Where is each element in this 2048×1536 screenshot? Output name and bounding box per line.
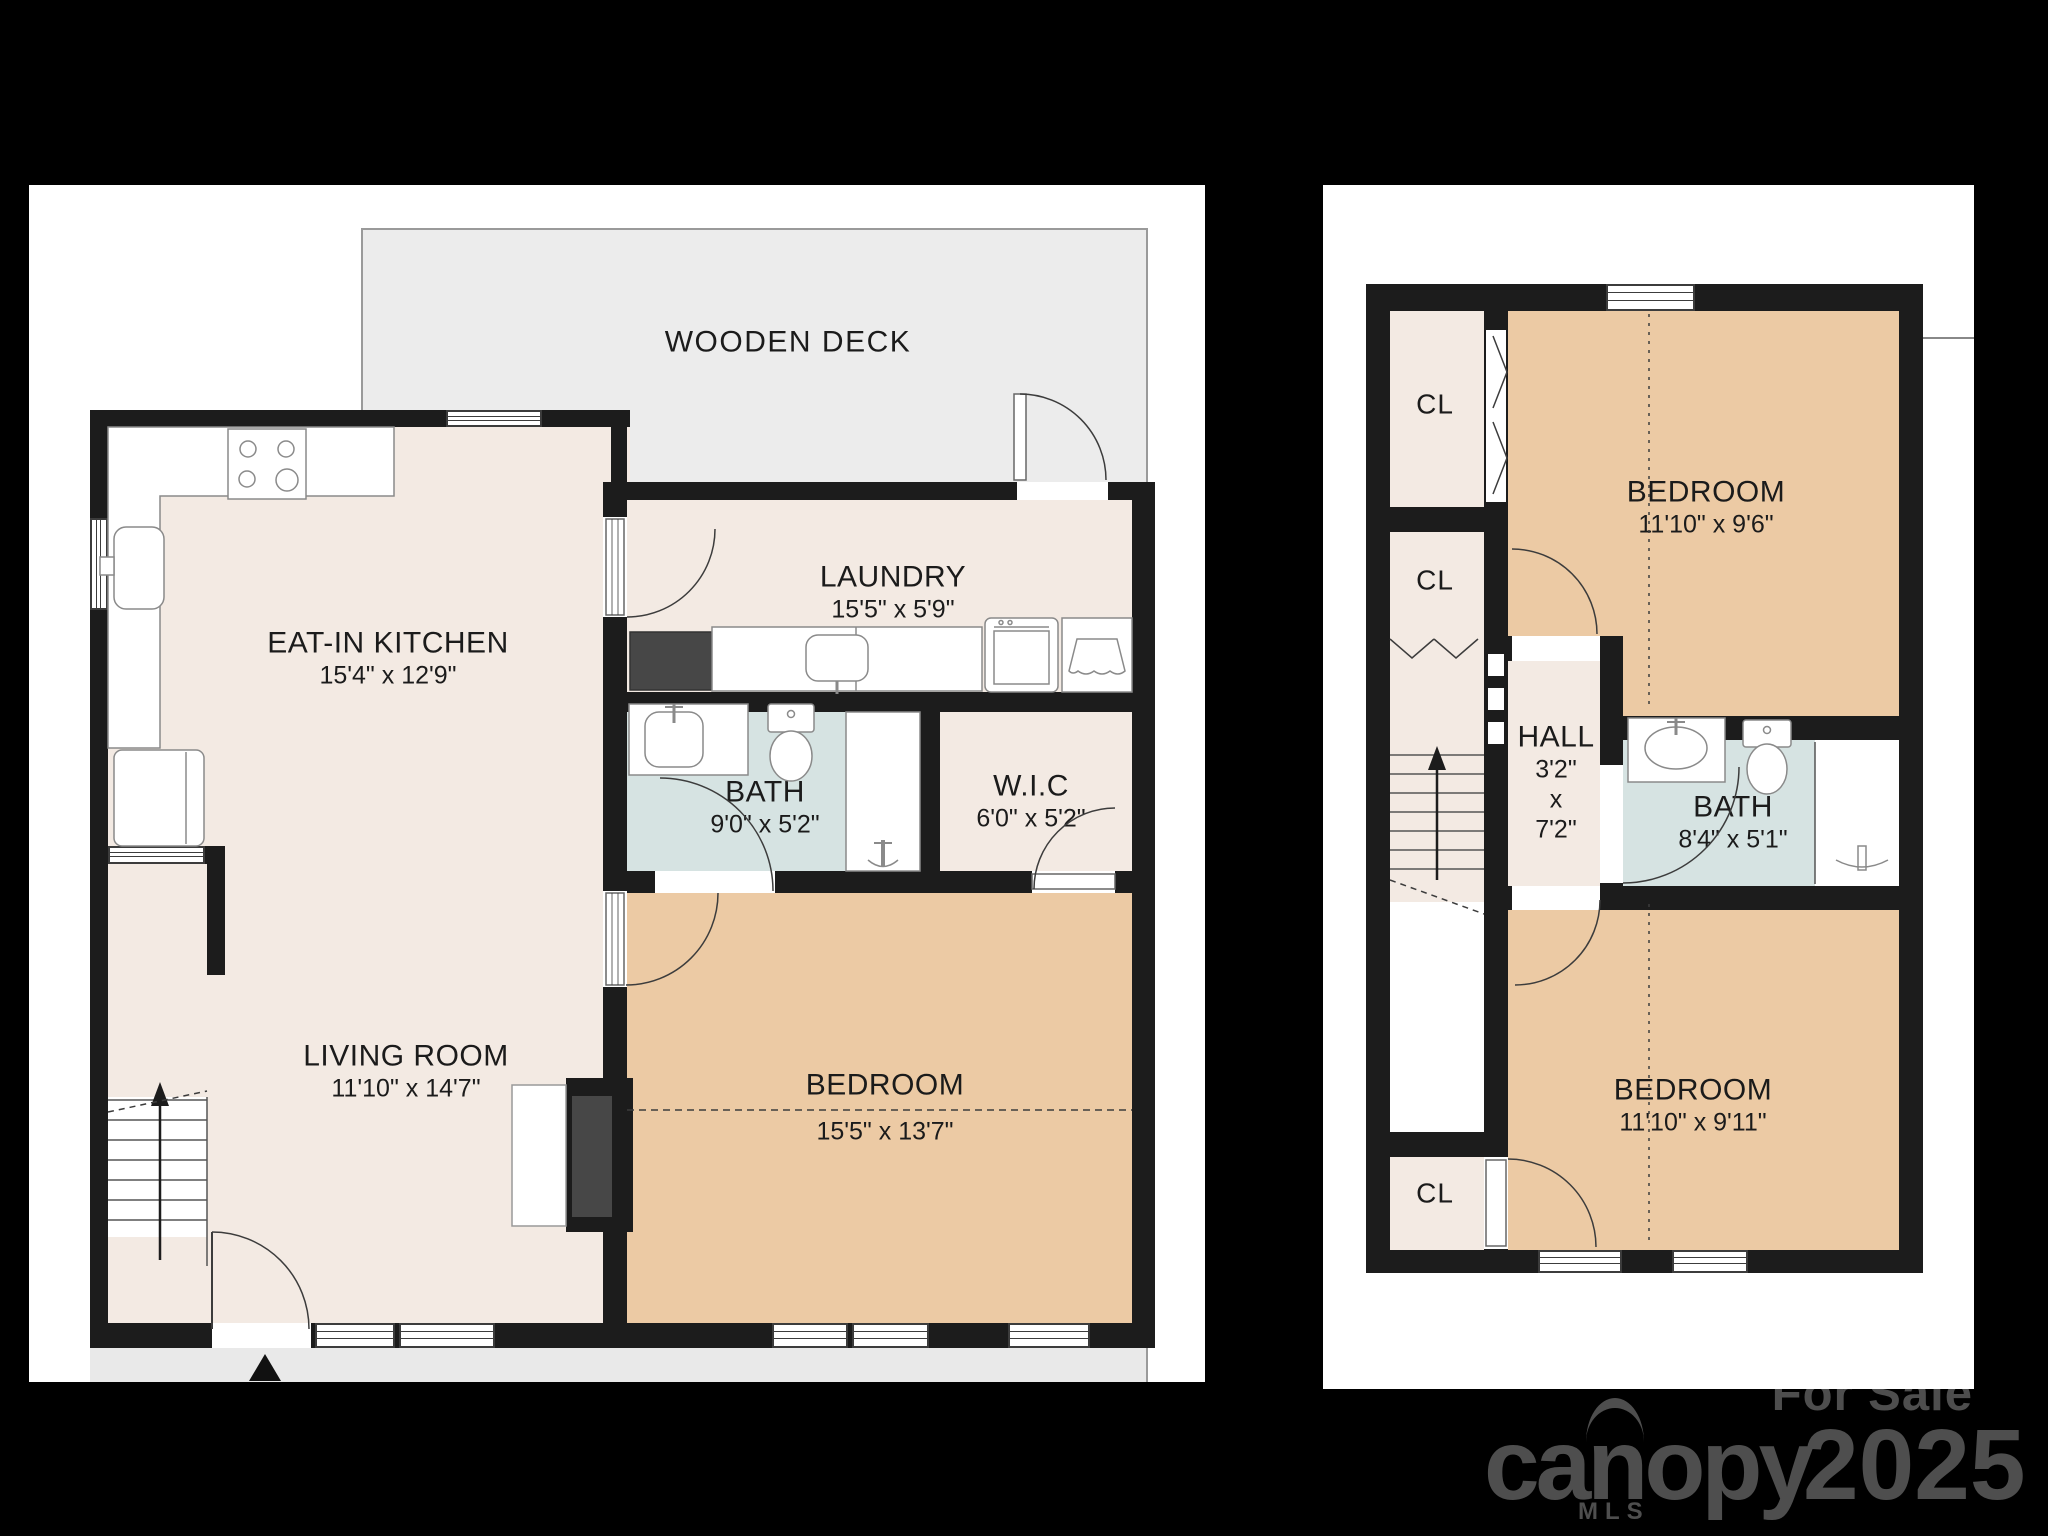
kitchen-laundry-door-opening [603,517,627,617]
room-dims: 15'5" x 5'9" [831,595,954,625]
room-name: HALL [1517,720,1594,755]
room-dims: 7'2" [1535,815,1576,845]
closet-label: CL [1416,563,1454,598]
room-dims: 11'10" x 9'11" [1619,1108,1766,1138]
landing-floor [1390,636,1484,750]
watermark-brand-sub: MLS [1578,1498,1650,1526]
wall [1366,1132,1508,1157]
room-name: W.I.C [993,769,1069,804]
wall [1366,507,1508,532]
hall-top-door-opening [1512,636,1600,661]
room-name: CL [1416,563,1454,598]
room-dims: 11'10" x 9'6" [1638,510,1773,540]
bedroom1-label: BEDROOM 15'5" x 13'7" [806,1068,965,1147]
wic-door-opening [1032,871,1115,893]
laundry-label: LAUNDRY 15'5" x 5'9" [820,560,966,625]
room-name: LIVING ROOM [303,1039,509,1074]
bedroom2-label: BEDROOM 11'10" x 9'6" [1627,475,1786,540]
floor-plan-image: For Sale canopy MLS 2025 WOODEN DECK [0,0,2048,1536]
wall [627,692,1132,712]
room-dims: 15'5" x 13'7" [816,1117,953,1147]
watermark-year: 2025 [1803,1408,2025,1523]
cl3-door-opening [1484,1157,1508,1249]
wall [1623,716,1899,740]
window [446,410,542,427]
window [852,1323,929,1348]
wall [1899,284,1923,1273]
room-dims: 8'4" x 5'1" [1678,825,1787,855]
stair-void [1390,902,1484,1132]
kitchen-label: EAT-IN KITCHEN 15'4" x 12'9" [267,626,508,691]
wall [1366,1250,1923,1273]
bath1-label: BATH 9'0" x 5'2" [710,775,819,840]
room-dims: 3'2" [1535,755,1576,785]
wall [90,410,630,427]
window [315,1323,395,1348]
window [1008,1323,1090,1348]
room-name: BATH [725,775,805,810]
room-dims: x [1550,785,1563,815]
room-name: BEDROOM [1627,475,1786,510]
wall [611,427,627,482]
wall [1600,886,1899,910]
bath2-label: BATH 8'4" x 5'1" [1678,790,1787,855]
room-name: CL [1416,387,1454,422]
window [1538,1250,1622,1273]
room-name: EAT-IN KITCHEN [267,626,508,661]
cl1-bifold-opening [1486,330,1506,502]
window [399,1323,495,1348]
wall [207,846,225,975]
wic-label: W.I.C 6'0" x 5'2" [976,769,1085,834]
room-dims: 11'10" x 14'7" [331,1074,480,1104]
wall [1132,482,1155,1348]
closet-label: CL [1416,387,1454,422]
room-name: CL [1416,1176,1454,1211]
stairs2-area [1390,750,1484,902]
deck-door-opening [1017,482,1108,500]
hall-label: HALL 3'2" x 7'2" [1517,720,1594,845]
room-name: BEDROOM [1614,1073,1773,1108]
room-name: WOODEN DECK [665,325,912,360]
deck-label: WOODEN DECK [665,325,912,360]
room-dims: 15'4" x 12'9" [319,661,456,691]
window [772,1323,848,1348]
room-name: LAUNDRY [820,560,966,595]
hall-bottom-door-opening [1512,886,1600,910]
room-dims: 9'0" x 5'2" [710,810,819,840]
tub-area [1815,740,1899,886]
room-name: BATH [1693,790,1773,825]
entry-door-opening [212,1323,311,1348]
window [1606,284,1695,311]
closet-label: CL [1416,1176,1454,1211]
window [108,846,205,864]
bath1-door-opening [655,871,775,893]
wall [1366,284,1390,1273]
bath2-door-opening [1600,765,1623,883]
bedroom2-floor-lower [1623,636,1899,716]
room-dims: 6'0" x 5'2" [976,804,1085,834]
bedroom1-door-opening [603,891,627,987]
stairs1-area [108,1097,207,1237]
window [1672,1250,1748,1273]
window [90,518,108,610]
wall [920,712,940,871]
room-name: BEDROOM [806,1068,965,1103]
bedroom2-floor [1508,311,1899,636]
living-room-label: LIVING ROOM 11'10" x 14'7" [303,1039,509,1104]
wooden-deck [361,228,1148,410]
front-porch [90,1348,1148,1382]
bedroom3-label: BEDROOM 11'10" x 9'11" [1614,1073,1773,1138]
